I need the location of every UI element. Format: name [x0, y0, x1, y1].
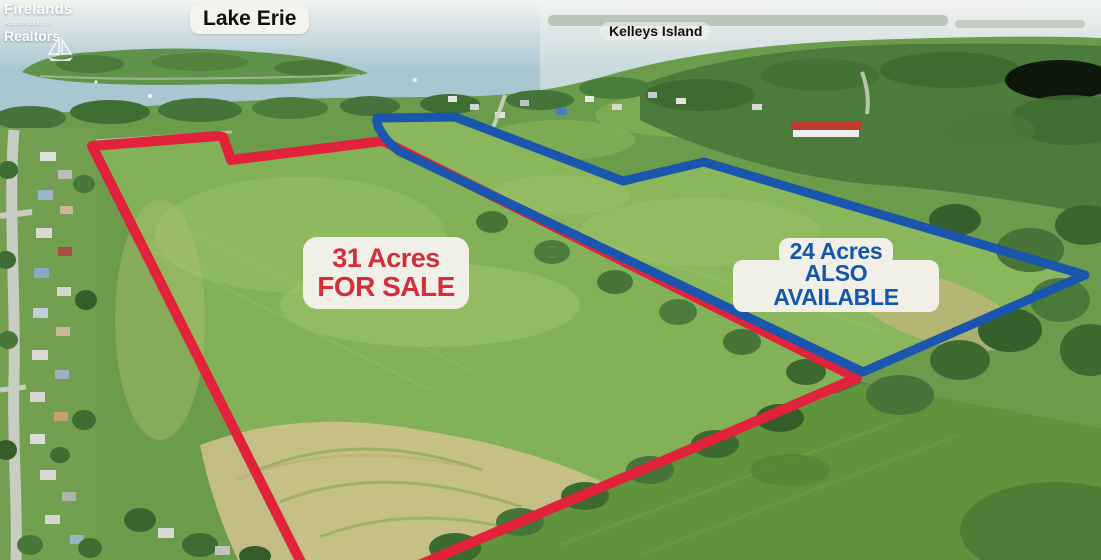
- blue-parcel-status: ALSO AVAILABLE: [733, 260, 939, 312]
- aerial-listing-photo: Firelands Association of Realtors Lake E…: [0, 0, 1101, 560]
- kelleys-island-label: Kelleys Island: [600, 22, 711, 40]
- red-parcel-status: FOR SALE: [307, 272, 465, 301]
- red-parcel-label: 31 Acres FOR SALE: [303, 237, 469, 309]
- logo-line-2: Association of: [4, 19, 73, 27]
- lake-erie-label: Lake Erie: [190, 4, 309, 34]
- blue-parcel-label: 24 Acres ALSO AVAILABLE: [733, 238, 939, 312]
- red-parcel-acreage: 31 Acres: [307, 244, 465, 272]
- sailboat-icon: [46, 36, 80, 66]
- logo-line-1: Firelands: [4, 2, 73, 17]
- brokerage-logo: Firelands Association of Realtors: [4, 2, 73, 43]
